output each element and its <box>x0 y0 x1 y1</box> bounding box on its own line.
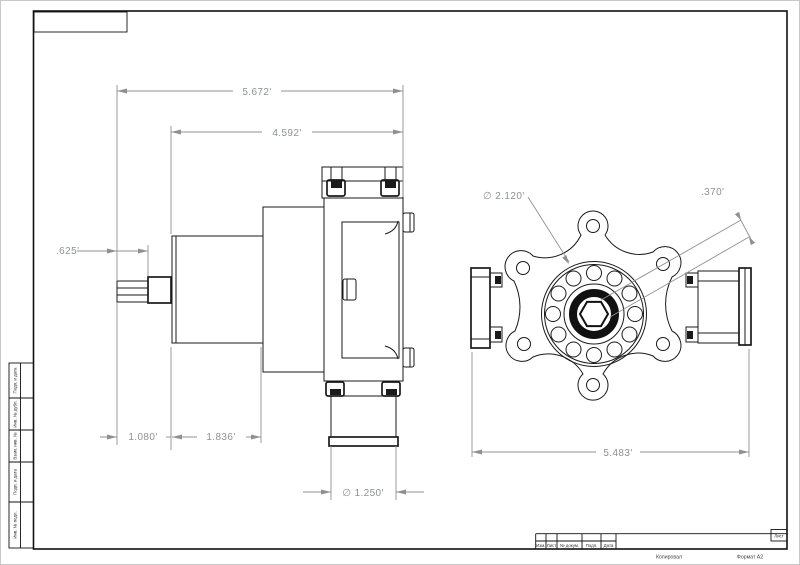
dim-roller-circle-diameter: ∅ 2.120' <box>483 191 525 202</box>
drawing-sheet: Подп. и дата Инв. № дубл. Взам. инв. № П… <box>0 0 800 565</box>
dim-hex-size: .370' <box>701 187 724 198</box>
hex-drive <box>580 302 608 326</box>
rev-header: Изм. <box>536 543 545 548</box>
margin-label: Подп. и дата <box>13 367 18 393</box>
margin-label: Взам. инв. № <box>13 432 18 459</box>
format-label: Формат А2 <box>737 555 763 561</box>
rev-header: № докум. <box>560 543 579 548</box>
dim-outlet-diameter: ∅ 1.250' <box>342 488 384 499</box>
dim-nose-length: 1.080' <box>128 432 157 443</box>
margin-label: Инв. № дубл. <box>13 400 18 427</box>
sheet-label: Лист <box>774 534 784 539</box>
rev-header: Лист <box>547 543 557 548</box>
dim-overall-width: 5.483' <box>603 448 632 459</box>
dim-body-length: 4.592' <box>272 128 301 139</box>
rev-header: Дата <box>604 543 614 548</box>
margin-label: Подп. и дата <box>13 469 18 495</box>
dim-shaft-length: .625' <box>56 246 79 257</box>
technical-drawing-canvas: Подп. и дата Инв. № дубл. Взам. инв. № П… <box>0 0 800 565</box>
dim-motor-length: 1.836' <box>206 432 235 443</box>
copied-label: Копировал <box>656 555 682 561</box>
dim-overall-length: 5.672' <box>242 87 271 98</box>
page-border <box>1 1 800 565</box>
rev-header: Подп. <box>586 543 598 548</box>
margin-label: Инв. № подл. <box>13 511 18 538</box>
